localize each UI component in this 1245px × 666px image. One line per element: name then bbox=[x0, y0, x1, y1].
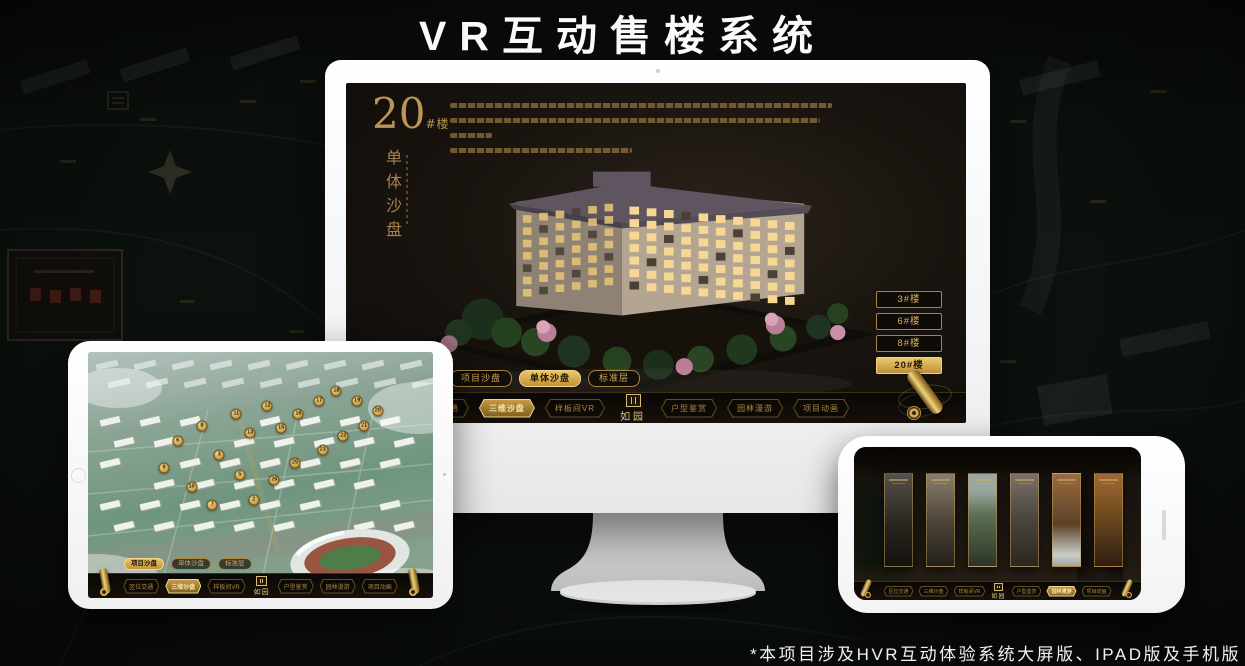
menu-item-样板间VR[interactable]: 样板间VR bbox=[954, 586, 986, 597]
scroll-icon[interactable] bbox=[405, 566, 425, 598]
gallery-panel[interactable] bbox=[1094, 473, 1123, 567]
logo-text: 如园 bbox=[991, 591, 1005, 600]
phone-menu-bar: 区位交通三维沙盘样板间VR 如园 户型鉴赏园林漫游项目动画 bbox=[854, 581, 1141, 600]
building-badge-8[interactable]: 8 bbox=[196, 420, 207, 431]
building-badge-22[interactable]: 22 bbox=[338, 430, 349, 441]
menu-item-三维沙盘[interactable]: 三维沙盘 bbox=[918, 586, 948, 597]
tablet-screen: 6891011121315161718192021222325263572 项目… bbox=[88, 352, 433, 598]
background-plaque bbox=[8, 250, 122, 340]
stage: VR互动售楼系统 20#楼 单体沙盘 bbox=[0, 0, 1245, 666]
menu-item-项目动画[interactable]: 项目动画 bbox=[362, 579, 398, 594]
menu-item-三维沙盘[interactable]: 三维沙盘 bbox=[479, 399, 535, 418]
building-badge-19[interactable]: 19 bbox=[352, 396, 363, 407]
monitor-tab-row: 项目沙盘单体沙盘标准层 bbox=[450, 370, 640, 387]
river bbox=[1030, 60, 1060, 310]
footnote: *本项目涉及HVR互动体验系统大屏版、IPAD版及手机版 bbox=[750, 640, 1241, 665]
scroll-icon[interactable] bbox=[96, 566, 116, 598]
tab-项目沙盘[interactable]: 项目沙盘 bbox=[450, 370, 512, 387]
building-badge-23[interactable]: 23 bbox=[317, 445, 328, 456]
building-badge-11[interactable]: 11 bbox=[231, 408, 242, 419]
menu-item-户型鉴赏[interactable]: 户型鉴赏 bbox=[278, 579, 314, 594]
building-badge-18[interactable]: 18 bbox=[331, 386, 342, 397]
menu-item-项目动画[interactable]: 项目动画 bbox=[1082, 586, 1112, 597]
logo-text: 如园 bbox=[254, 587, 270, 597]
gallery-panel[interactable] bbox=[1052, 473, 1081, 567]
phone-speaker-slot bbox=[1162, 510, 1166, 540]
monitor-camera-icon bbox=[656, 69, 660, 73]
heading-suffix: #楼 bbox=[425, 117, 449, 131]
intro-text-line bbox=[450, 118, 820, 123]
building-badge-17[interactable]: 17 bbox=[314, 396, 325, 407]
building-selector: 3#楼 6#楼 8#楼 20#楼 bbox=[876, 291, 942, 374]
compass-icon bbox=[148, 150, 192, 194]
building-badge-12[interactable]: 12 bbox=[262, 401, 273, 412]
gallery-panel[interactable] bbox=[926, 473, 955, 567]
monitor-stand bbox=[548, 511, 768, 611]
scroll-icon[interactable] bbox=[859, 578, 875, 600]
building-badge-13[interactable]: 13 bbox=[245, 428, 256, 439]
intro-text-line bbox=[450, 133, 492, 138]
heading-number: 20 bbox=[372, 89, 425, 138]
seal-icon bbox=[994, 583, 1003, 591]
building-badge-6[interactable]: 6 bbox=[172, 435, 183, 446]
logo[interactable]: 如园 bbox=[254, 576, 270, 597]
heading-divider bbox=[406, 155, 408, 225]
building-badge-16[interactable]: 16 bbox=[293, 408, 304, 419]
building-badge-25[interactable]: 25 bbox=[290, 457, 301, 468]
menu-item-户型鉴赏[interactable]: 户型鉴赏 bbox=[661, 399, 717, 418]
logo[interactable]: 如园 bbox=[991, 583, 1005, 600]
building-button[interactable]: 6#楼 bbox=[876, 313, 942, 330]
building-badge-26[interactable]: 26 bbox=[269, 474, 280, 485]
tablet-menu-bar: 区位交通三维沙盘样板间VR 如园 户型鉴赏园林漫游项目动画 bbox=[88, 573, 433, 598]
tab-单体沙盘[interactable]: 单体沙盘 bbox=[171, 558, 211, 570]
building-badge-3[interactable]: 3 bbox=[214, 450, 225, 461]
menu-item-样板间VR[interactable]: 样板间VR bbox=[545, 399, 605, 418]
intro-text-line bbox=[450, 103, 832, 108]
building-badge-15[interactable]: 15 bbox=[276, 423, 287, 434]
tablet-device: 6891011121315161718192021222325263572 项目… bbox=[68, 341, 453, 609]
menu-item-园林漫游[interactable]: 园林漫游 bbox=[727, 399, 783, 418]
intro-text-line bbox=[450, 148, 632, 153]
building-badge-9[interactable]: 9 bbox=[158, 462, 169, 473]
gallery-panel[interactable] bbox=[1010, 473, 1039, 567]
building-badge-10[interactable]: 10 bbox=[186, 482, 197, 493]
scroll-icon[interactable] bbox=[1120, 578, 1136, 600]
building-badge-2[interactable]: 2 bbox=[248, 494, 259, 505]
tab-标准层[interactable]: 标准层 bbox=[588, 370, 640, 387]
page-title: VR互动售楼系统 bbox=[0, 2, 1245, 62]
gallery-panel[interactable] bbox=[968, 473, 997, 567]
menu-item-户型鉴赏[interactable]: 户型鉴赏 bbox=[1011, 586, 1041, 597]
menu-item-区位交通[interactable]: 区位交通 bbox=[123, 579, 159, 594]
building-badge-5[interactable]: 5 bbox=[234, 470, 245, 481]
building-badge-20[interactable]: 20 bbox=[372, 406, 383, 417]
screen-heading: 20#楼 bbox=[372, 93, 450, 135]
tablet-tab-row: 项目沙盘单体沙盘标准层 bbox=[124, 558, 252, 570]
menu-item-三维沙盘[interactable]: 三维沙盘 bbox=[165, 579, 201, 594]
gallery-panels bbox=[884, 473, 1123, 567]
seal-icon bbox=[256, 576, 267, 586]
menu-item-样板间VR[interactable]: 样板间VR bbox=[207, 579, 245, 594]
tab-单体沙盘[interactable]: 单体沙盘 bbox=[519, 370, 581, 387]
phone-screen: 区位交通三维沙盘样板间VR 如园 户型鉴赏园林漫游项目动画 bbox=[854, 447, 1141, 600]
building-badge-21[interactable]: 21 bbox=[359, 420, 370, 431]
tab-项目沙盘[interactable]: 项目沙盘 bbox=[124, 558, 164, 570]
menu-item-项目动画[interactable]: 项目动画 bbox=[793, 399, 849, 418]
gallery-panel[interactable] bbox=[884, 473, 913, 567]
logo-text: 如园 bbox=[620, 408, 646, 423]
menu-item-园林漫游[interactable]: 园林漫游 bbox=[1046, 586, 1076, 597]
heading-subtitle: 单体沙盘 bbox=[380, 149, 404, 245]
logo[interactable]: 如园 bbox=[620, 394, 646, 423]
building-badge-7[interactable]: 7 bbox=[207, 499, 218, 510]
seal-icon bbox=[626, 394, 641, 407]
scroll-icon[interactable] bbox=[898, 367, 954, 423]
menu-item-园林漫游[interactable]: 园林漫游 bbox=[320, 579, 356, 594]
phone-device: 区位交通三维沙盘样板间VR 如园 户型鉴赏园林漫游项目动画 bbox=[838, 436, 1185, 613]
menu-item-区位交通[interactable]: 区位交通 bbox=[883, 586, 913, 597]
building-button[interactable]: 3#楼 bbox=[876, 291, 942, 308]
tablet-home-button[interactable] bbox=[71, 468, 86, 483]
building-button[interactable]: 8#楼 bbox=[876, 335, 942, 352]
tab-标准层[interactable]: 标准层 bbox=[218, 558, 252, 570]
building-render bbox=[401, 147, 881, 395]
tablet-camera-icon bbox=[443, 473, 446, 476]
